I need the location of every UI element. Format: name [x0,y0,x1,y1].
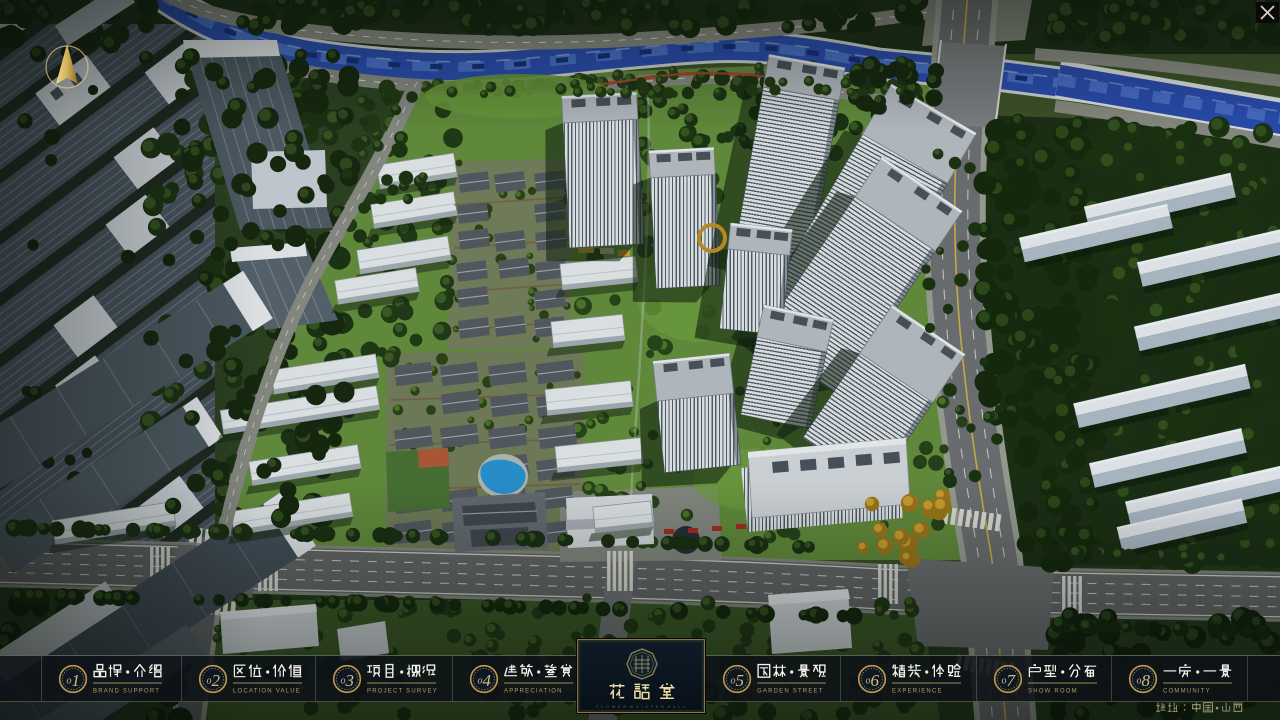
svg-text:BRAND SUPPORT: BRAND SUPPORT [93,689,160,695]
svg-text:1: 1 [72,671,81,690]
svg-text:6: 6 [870,671,879,690]
svg-text:APPRECIATION: APPRECIATION [504,689,563,695]
svg-text:LOCATION VALUE: LOCATION VALUE [233,689,301,695]
svg-text:EXPERIENCE: EXPERIENCE [892,689,943,695]
svg-text:2: 2 [211,671,220,690]
svg-text:SHOW ROOM: SHOW ROOM [1028,689,1078,695]
svg-text:COMMUNITY: COMMUNITY [1163,689,1211,695]
svg-text:PROJECT SURVEY: PROJECT SURVEY [367,689,438,695]
svg-text:5: 5 [736,671,745,690]
svg-text:8: 8 [1141,671,1150,690]
svg-text:GARDEN STREET: GARDEN STREET [757,689,824,695]
svg-text:3: 3 [344,671,354,690]
svg-text:4: 4 [482,671,491,690]
